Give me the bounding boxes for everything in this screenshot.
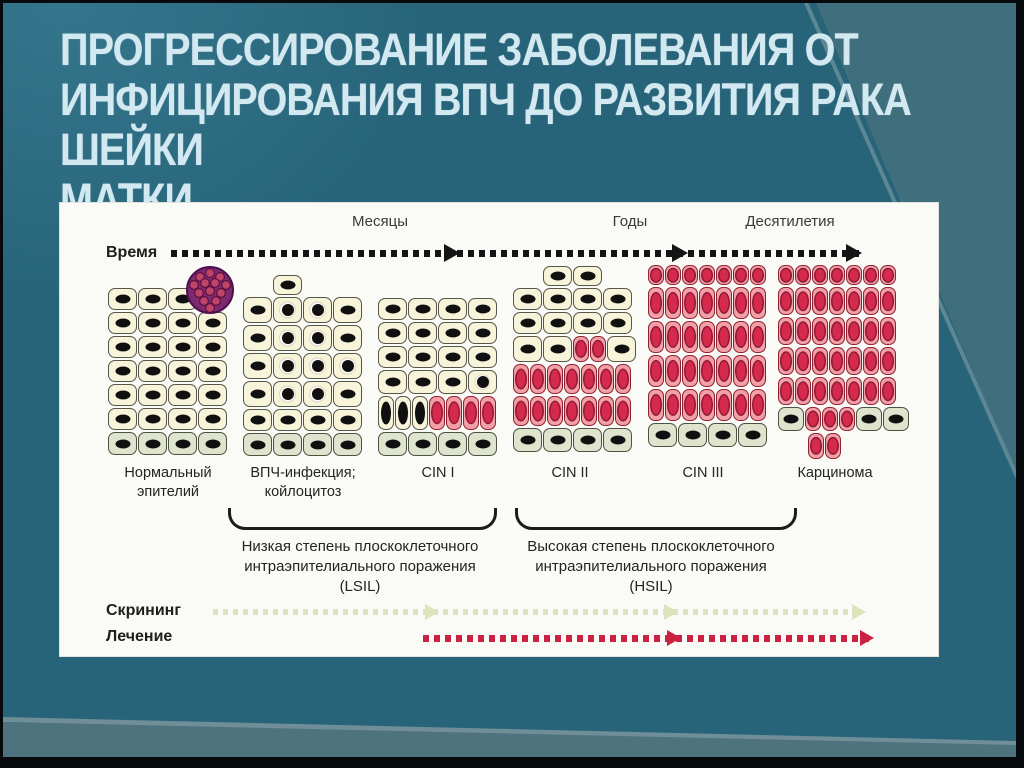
epithelial-cell [333, 325, 362, 351]
epithelial-cell [699, 265, 715, 285]
epithelial-cell [333, 433, 362, 456]
epithelial-cell [543, 266, 572, 286]
epithelial-cell [273, 381, 302, 407]
epithelial-cell [543, 288, 572, 310]
epithelial-cell [863, 317, 879, 345]
epithelial-cell [408, 346, 437, 368]
epithelial-cell [665, 355, 681, 387]
epithelial-cell [738, 423, 767, 447]
epithelial-cell [438, 370, 467, 394]
epithelial-cell [198, 384, 227, 406]
cells-cin2 [513, 266, 636, 452]
cells-hpv-koilocytosis [243, 275, 362, 456]
time-unit-years: Годы [613, 213, 648, 230]
epithelial-cell [303, 409, 332, 431]
epithelial-cell [243, 381, 272, 407]
lsil-caption-line: интраэпителиального поражения [210, 557, 510, 577]
epithelial-cell [678, 423, 707, 447]
epithelial-cell [303, 433, 332, 456]
hsil-caption-line: интраэпителиального поражения [501, 557, 801, 577]
epithelial-cell [543, 336, 572, 362]
epithelial-cell [648, 321, 664, 353]
epithelial-cell [778, 317, 794, 345]
epithelial-cell [648, 389, 664, 421]
epithelial-cell [880, 265, 896, 285]
epithelial-cell [412, 396, 428, 430]
epithelial-cell [795, 265, 811, 285]
epithelial-cell [795, 287, 811, 315]
treatment-arrowhead-icon [667, 630, 681, 646]
epithelial-cell [880, 377, 896, 405]
epithelial-cell [750, 355, 766, 387]
epithelial-cell [468, 298, 497, 320]
epithelial-cell [829, 265, 845, 285]
epithelial-cell [682, 265, 698, 285]
epithelial-cell [303, 325, 332, 351]
epithelial-cell [408, 322, 437, 344]
epithelial-cell [846, 317, 862, 345]
epithelial-cell [198, 360, 227, 382]
epithelial-cell [429, 396, 445, 430]
epithelial-cell [530, 396, 546, 426]
lsil-bracket [228, 508, 497, 530]
epithelial-cell [665, 287, 681, 319]
epithelial-cell [733, 265, 749, 285]
epithelial-cell [573, 428, 602, 452]
epithelial-cell [543, 312, 572, 334]
epithelial-cell [378, 298, 407, 320]
epithelial-cell [273, 353, 302, 379]
epithelial-cell [198, 408, 227, 430]
hpv-virus-icon [184, 264, 236, 316]
epithelial-cell [603, 312, 632, 334]
epithelial-cell [863, 377, 879, 405]
epithelial-cell [378, 396, 394, 430]
epithelial-cell [513, 428, 542, 452]
epithelial-cell [303, 297, 332, 323]
epithelial-cell [273, 275, 302, 295]
slide-title: ПРОГРЕССИРОВАНИЕ ЗАБОЛЕВАНИЯ ОТ ИНФИЦИРО… [60, 25, 993, 225]
epithelial-cell [839, 407, 855, 431]
epithelial-cell [408, 370, 437, 394]
epithelial-cell [603, 428, 632, 452]
epithelial-cell [825, 433, 841, 459]
epithelial-cell [395, 396, 411, 430]
cells-cin1 [378, 298, 497, 456]
cell-spacer [513, 266, 542, 286]
screening-arrowhead-icon [664, 604, 678, 620]
epithelial-cell [648, 287, 664, 319]
epithelial-cell [243, 433, 272, 456]
epithelial-cell [573, 288, 602, 310]
epithelial-cell [273, 409, 302, 431]
epithelial-cell [547, 364, 563, 394]
epithelial-cell [716, 355, 732, 387]
epithelial-cell [615, 396, 631, 426]
epithelial-cell [243, 297, 272, 323]
epithelial-cell [581, 396, 597, 426]
epithelial-cell [778, 287, 794, 315]
epithelial-cell [750, 321, 766, 353]
epithelial-cell [198, 336, 227, 358]
epithelial-cell [699, 287, 715, 319]
screenshot-root: { "slide": { "title_lines": [ "ПРОГРЕССИ… [0, 0, 1024, 768]
epithelial-cell [598, 364, 614, 394]
epithelial-cell [108, 360, 137, 382]
epithelial-cell [665, 389, 681, 421]
epithelial-cell [108, 432, 137, 455]
epithelial-cell [480, 396, 496, 430]
epithelial-cell [513, 288, 542, 310]
epithelial-cell [795, 377, 811, 405]
epithelial-cell [168, 432, 197, 455]
epithelial-cell [468, 322, 497, 344]
epithelial-cell [333, 297, 362, 323]
epithelial-cell [138, 312, 167, 334]
diagram-panel: Месяцы Годы Десятилетия Время Нормальн [60, 203, 938, 656]
epithelial-cell [138, 432, 167, 455]
epithelial-cell [378, 370, 407, 394]
epithelial-cell [138, 360, 167, 382]
epithelial-cell [812, 317, 828, 345]
epithelial-cell [543, 428, 572, 452]
epithelial-cell [699, 355, 715, 387]
epithelial-cell [682, 389, 698, 421]
screening-arrowhead-icon [425, 604, 439, 620]
epithelial-cell [573, 266, 602, 286]
epithelial-cell [805, 407, 821, 431]
epithelial-cell [880, 347, 896, 375]
epithelial-cell [795, 317, 811, 345]
epithelial-cell [699, 321, 715, 353]
epithelial-cell [581, 364, 597, 394]
epithelial-cell [648, 265, 664, 285]
epithelial-cell [716, 389, 732, 421]
epithelial-cell [733, 355, 749, 387]
epithelial-cell [138, 288, 167, 310]
epithelial-cell [333, 381, 362, 407]
epithelial-cell [863, 265, 879, 285]
epithelial-cell [564, 364, 580, 394]
time-arrowhead-icon [672, 244, 688, 262]
epithelial-cell [168, 384, 197, 406]
epithelial-cell [615, 364, 631, 394]
epithelial-cell [648, 423, 677, 447]
epithelial-cell [108, 288, 137, 310]
epithelial-cell [138, 336, 167, 358]
epithelial-cell [243, 353, 272, 379]
epithelial-cell [808, 433, 824, 459]
cell-spacer [778, 433, 807, 459]
epithelial-cell [108, 336, 137, 358]
epithelial-cell [378, 432, 407, 456]
epithelial-cell [378, 322, 407, 344]
cell-spacer [243, 275, 272, 295]
epithelial-cell [243, 325, 272, 351]
epithelial-cell [273, 433, 302, 456]
title-line-2: ИНФИЦИРОВАНИЯ ВПЧ ДО РАЗВИТИЯ РАКА ШЕЙКИ [60, 74, 911, 175]
epithelial-cell [573, 312, 602, 334]
epithelial-cell [829, 377, 845, 405]
epithelial-cell [273, 297, 302, 323]
epithelial-cell [778, 347, 794, 375]
epithelial-cell [333, 353, 362, 379]
treatment-label: Лечение [106, 628, 172, 646]
lsil-caption: Низкая степень плоскоклеточного интраэпи… [210, 537, 510, 597]
epithelial-cell [108, 384, 137, 406]
hsil-caption: Высокая степень плоскоклеточного интраэп… [501, 537, 801, 597]
epithelial-cell [438, 322, 467, 344]
screening-dotted-arrow [213, 609, 863, 615]
epithelial-cell [829, 287, 845, 315]
epithelial-cell [446, 396, 462, 430]
epithelial-cell [699, 389, 715, 421]
epithelial-cell [682, 287, 698, 319]
epithelial-cell [778, 265, 794, 285]
epithelial-cell [665, 321, 681, 353]
epithelial-cell [408, 298, 437, 320]
epithelial-cell [733, 321, 749, 353]
time-arrowhead-icon [444, 244, 460, 262]
screening-label: Скрининг [106, 602, 181, 620]
epithelial-cell [682, 355, 698, 387]
hsil-caption-line: Высокая степень плоскоклеточного [501, 537, 801, 557]
epithelial-cell [863, 287, 879, 315]
epithelial-cell [598, 396, 614, 426]
epithelial-cell [750, 389, 766, 421]
epithelial-cell [829, 347, 845, 375]
epithelial-cell [198, 432, 227, 455]
epithelial-cell [438, 346, 467, 368]
epithelial-cell [513, 312, 542, 334]
epithelial-cell [547, 396, 563, 426]
epithelial-cell [273, 325, 302, 351]
epithelial-cell [846, 377, 862, 405]
epithelial-cell [108, 408, 137, 430]
epithelial-cell [138, 384, 167, 406]
epithelial-cell [708, 423, 737, 447]
epithelial-cell [303, 353, 332, 379]
stage-label-carcinoma: Карцинома [755, 464, 915, 483]
epithelial-cell [880, 287, 896, 315]
time-dotted-arrow [171, 250, 859, 257]
epithelial-cell [829, 317, 845, 345]
epithelial-cell [846, 265, 862, 285]
epithelial-cell [812, 287, 828, 315]
epithelial-cell [513, 364, 529, 394]
epithelial-cell [168, 336, 197, 358]
epithelial-cell [795, 347, 811, 375]
epithelial-cell [812, 265, 828, 285]
epithelial-cell [863, 347, 879, 375]
epithelial-cell [883, 407, 909, 431]
epithelial-cell [733, 389, 749, 421]
epithelial-cell [463, 396, 479, 430]
epithelial-cell [468, 370, 497, 394]
epithelial-cell [513, 396, 529, 426]
epithelial-cell [564, 396, 580, 426]
epithelial-cell [573, 336, 589, 362]
epithelial-cell [778, 377, 794, 405]
epithelial-cell [846, 287, 862, 315]
time-axis-label: Время [106, 244, 157, 262]
epithelial-cell [333, 409, 362, 431]
epithelial-cell [138, 408, 167, 430]
epithelial-cell [607, 336, 636, 362]
lsil-caption-line: (LSIL) [210, 577, 510, 597]
epithelial-cell [513, 336, 542, 362]
epithelial-cell [778, 407, 804, 431]
screening-arrowhead-icon [852, 604, 866, 620]
treatment-arrowhead-icon [860, 630, 874, 646]
treatment-dotted-arrow [423, 635, 871, 642]
epithelial-cell [243, 409, 272, 431]
epithelial-cell [378, 346, 407, 368]
epithelial-cell [716, 265, 732, 285]
epithelial-cell [880, 317, 896, 345]
epithelial-cell [468, 346, 497, 368]
hsil-caption-line: (HSIL) [501, 577, 801, 597]
time-arrowhead-icon [846, 244, 862, 262]
epithelial-cell [812, 377, 828, 405]
epithelial-cell [530, 364, 546, 394]
epithelial-cell [822, 407, 838, 431]
epithelial-cell [750, 287, 766, 319]
lsil-caption-line: Низкая степень плоскоклеточного [210, 537, 510, 557]
hsil-bracket [515, 508, 797, 530]
time-unit-months: Месяцы [352, 213, 408, 230]
epithelial-cell [108, 312, 137, 334]
epithelial-cell [716, 287, 732, 319]
epithelial-cell [733, 287, 749, 319]
epithelial-cell [603, 288, 632, 310]
title-line-1: ПРОГРЕССИРОВАНИЕ ЗАБОЛЕВАНИЯ ОТ [60, 24, 858, 75]
epithelial-cell [846, 347, 862, 375]
epithelial-cell [408, 432, 437, 456]
epithelial-cell [468, 432, 497, 456]
presentation-slide: ПРОГРЕССИРОВАНИЕ ЗАБОЛЕВАНИЯ ОТ ИНФИЦИРО… [3, 3, 1016, 757]
time-unit-decades: Десятилетия [745, 213, 834, 230]
epithelial-cell [648, 355, 664, 387]
epithelial-cell [812, 347, 828, 375]
cells-cin3 [648, 265, 767, 447]
epithelial-cell [438, 298, 467, 320]
epithelial-cell [590, 336, 606, 362]
epithelial-cell [438, 432, 467, 456]
epithelial-cell [168, 360, 197, 382]
epithelial-cell [682, 321, 698, 353]
epithelial-cell [716, 321, 732, 353]
epithelial-cell [303, 381, 332, 407]
cells-carcinoma [778, 265, 909, 459]
epithelial-cell [750, 265, 766, 285]
stage-label-line: койлоцитоз [223, 483, 383, 502]
epithelial-cell [856, 407, 882, 431]
epithelial-cell [168, 408, 197, 430]
epithelial-cell [665, 265, 681, 285]
